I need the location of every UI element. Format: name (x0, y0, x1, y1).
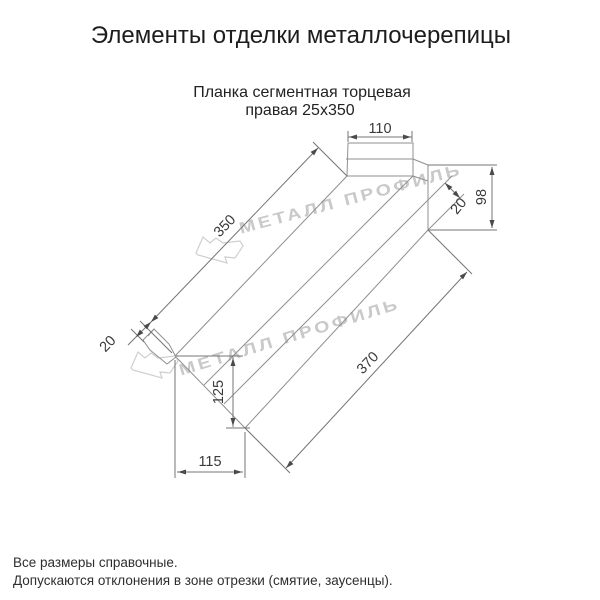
long-edge-bottom (245, 230, 428, 428)
product-name-line1: Планка сегментная торцевая (193, 84, 411, 101)
footer-notes: Все размеры справочные. Допускаются откл… (13, 555, 393, 588)
label-end-cut-run: 115 (198, 454, 221, 470)
label-flange-height: 98 (474, 189, 490, 205)
label-top-edge-length: 350 (211, 212, 239, 241)
label-end-cut-drop: 125 (211, 380, 227, 404)
label-flange-fold: 20 (448, 195, 471, 218)
technical-drawing-canvas: МЕТАЛЛ ПРОФИЛЬ МЕТАЛЛ ПРОФИЛЬ (0, 0, 600, 600)
product-name-line2: правая 25х350 (245, 102, 354, 119)
label-end-hem-fold: 20 (97, 333, 120, 356)
header: Элементы отделки металлочерепицы Планка … (91, 22, 511, 119)
metall-profil-logo-lower (131, 352, 178, 378)
label-top-face-width: 110 (368, 121, 391, 137)
top-face-end-profile (346, 143, 413, 176)
label-bottom-edge-length: 370 (354, 349, 382, 378)
dimension-20-hem (128, 322, 151, 345)
footer-note-line1: Все размеры справочные. (13, 555, 178, 570)
watermark-text-upper: МЕТАЛЛ ПРОФИЛЬ (237, 160, 464, 237)
footer-note-line2: Допускаются отклонения в зоне отрезки (с… (13, 573, 393, 588)
catalog-drawing-page: МЕТАЛЛ ПРОФИЛЬ МЕТАЛЛ ПРОФИЛЬ (0, 0, 600, 600)
dimension-370 (245, 230, 472, 473)
page-title: Элементы отделки металлочерепицы (91, 22, 511, 49)
